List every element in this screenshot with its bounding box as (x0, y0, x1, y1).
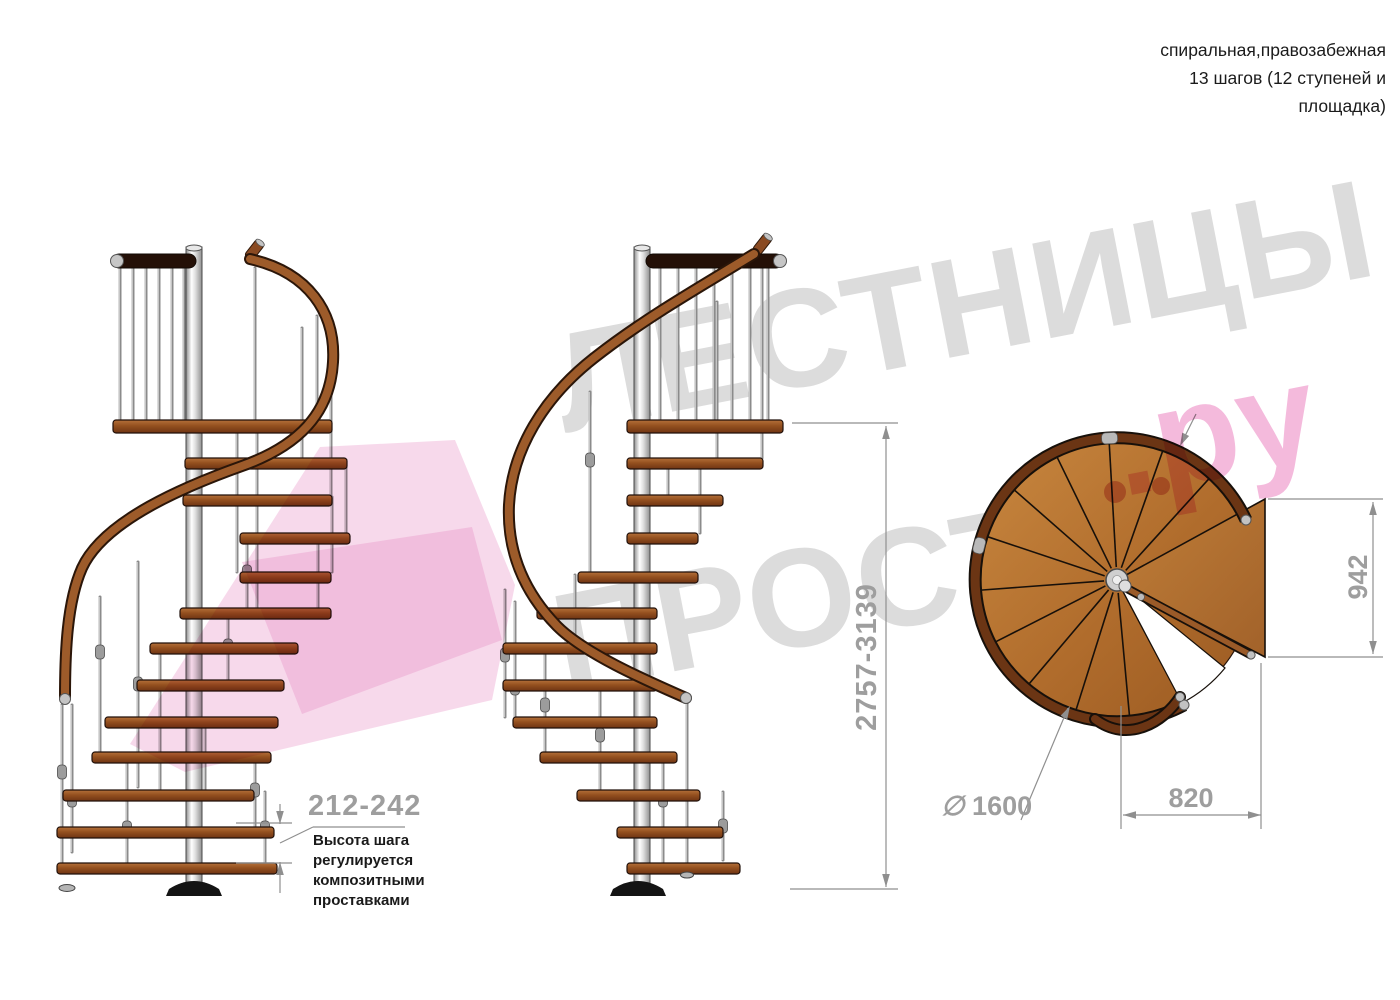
handrail-end-cap (681, 693, 692, 704)
spacer-collar (58, 765, 67, 779)
step-board (63, 790, 254, 801)
rail-ball-joint (1119, 580, 1131, 592)
dimension-arrowhead (1369, 502, 1377, 515)
pole-base-flange (166, 881, 222, 896)
overhang-rail-cap (1176, 693, 1185, 702)
staircase-technical-drawing (0, 0, 1400, 1000)
guard-rail-end-cap (774, 255, 787, 268)
dimension-arrowhead (882, 874, 890, 887)
pole-base-flange (610, 881, 666, 896)
dim-step-height-label: 212-242 (308, 790, 421, 823)
step-board (627, 458, 763, 469)
blueprint-canvas: ЛЕСТНИЦЫ ПРОСТО (0, 0, 1400, 1000)
rail-sleeve-body (1101, 432, 1118, 444)
ring-cap-top (1241, 515, 1251, 525)
watermark-mark (1152, 477, 1170, 495)
step-board (513, 717, 657, 728)
dimension-arrowhead (1180, 433, 1189, 446)
pole-top-cap (634, 245, 650, 251)
spacer-collar (96, 645, 105, 659)
step-board (503, 680, 657, 691)
dimension-arrowhead (1248, 811, 1261, 819)
rail-nub (1138, 594, 1145, 601)
handrail-end-cap (60, 694, 71, 705)
step-board (57, 827, 274, 838)
dimension-arrowhead (882, 426, 890, 439)
step-board (57, 863, 277, 874)
pole-top-cap (186, 245, 202, 251)
dim-total-height-label: 2757-3139 (851, 577, 881, 737)
platform-guard-rail (112, 254, 196, 268)
elevation-view-right (501, 232, 787, 896)
step-board (617, 827, 723, 838)
diameter-icon: ∅ (941, 791, 965, 821)
step-height-note: Высота шага регулируется композитными пр… (313, 831, 425, 911)
spacer-collar (541, 698, 550, 712)
spacer-collar (586, 453, 595, 467)
dimension-line (280, 827, 313, 843)
step-board (540, 752, 677, 763)
dimension-arrowhead (1123, 811, 1136, 819)
landing-rail-cap (1247, 651, 1255, 659)
platform-board (627, 420, 783, 433)
step-board (577, 790, 700, 801)
baluster-foot (59, 885, 75, 892)
dim-diameter-label: ∅ 1600 (941, 791, 1032, 822)
baluster-foot (681, 872, 694, 878)
dimension-arrowhead (276, 811, 284, 824)
step-board (578, 572, 698, 583)
dim-landing-side-label: 942 (1343, 527, 1371, 627)
step-board (627, 495, 723, 506)
dimension-arrowhead (1369, 641, 1377, 654)
guard-rail-end-cap (111, 255, 124, 268)
watermark-mark (1104, 481, 1126, 503)
rail-sleeve (1101, 432, 1118, 444)
platform-guard-rail (646, 254, 783, 268)
plan-view (972, 432, 1265, 730)
drawing-title: спиральная,правозабежная 13 шагов (12 ст… (1046, 36, 1386, 120)
diameter-value: 1600 (972, 791, 1032, 821)
step-board (627, 533, 698, 544)
spacer-collar (596, 728, 605, 742)
dim-landing-width-label: 820 (1141, 783, 1241, 814)
